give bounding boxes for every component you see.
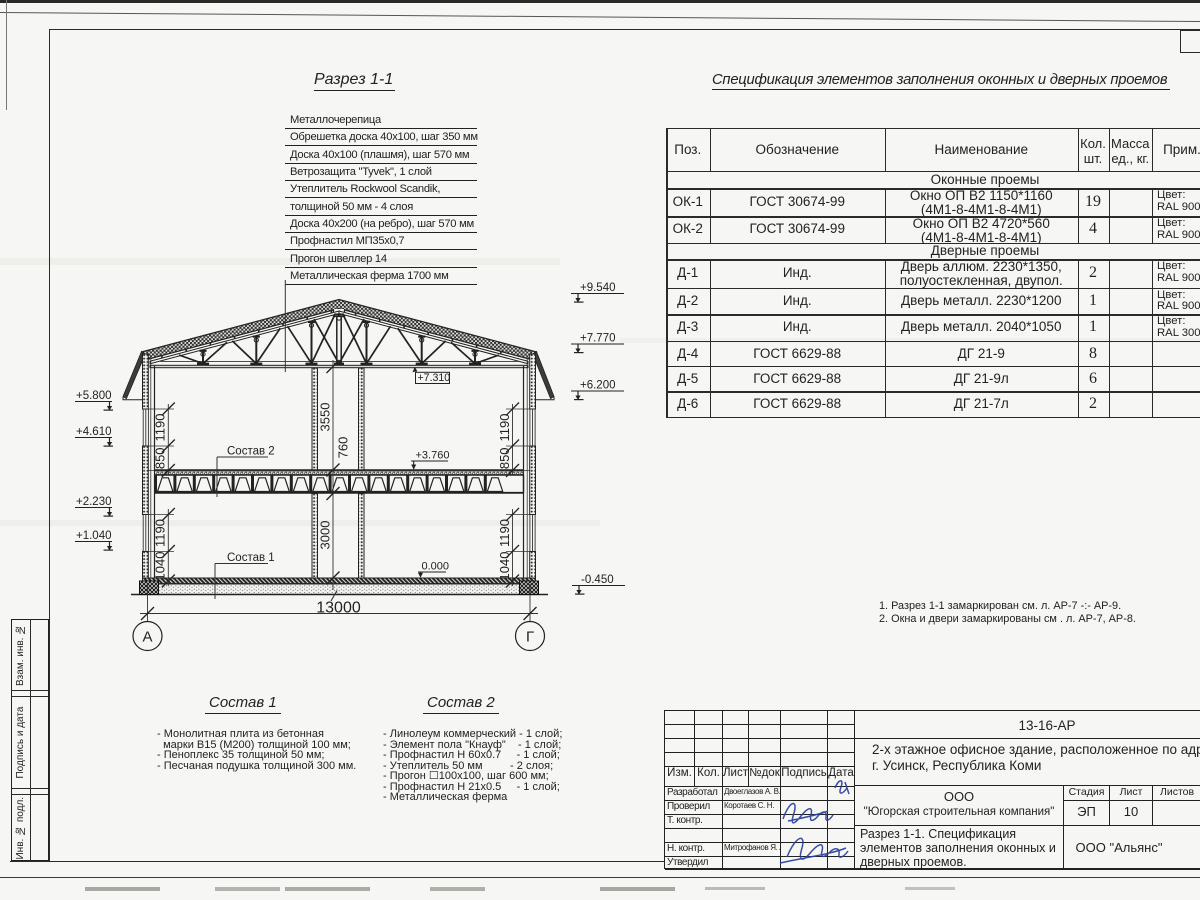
- svg-text:13000: 13000: [316, 600, 361, 617]
- svg-text:1040: 1040: [153, 552, 168, 581]
- svg-text:3000: 3000: [317, 521, 332, 550]
- svg-text:3550: 3550: [317, 403, 332, 432]
- svg-text:А: А: [142, 629, 152, 646]
- svg-text:760: 760: [336, 437, 351, 459]
- svg-text:1040: 1040: [497, 552, 512, 581]
- svg-text:0.000: 0.000: [422, 561, 450, 573]
- svg-text:+7.310: +7.310: [418, 372, 451, 384]
- svg-text:1190: 1190: [497, 519, 512, 547]
- svg-text:Г: Г: [526, 629, 534, 646]
- svg-text:850: 850: [497, 447, 512, 469]
- svg-text:+4.610: +4.610: [76, 426, 112, 438]
- svg-text:-0.450: -0.450: [581, 574, 614, 586]
- svg-text:1190: 1190: [153, 414, 168, 442]
- svg-text:+1.040: +1.040: [76, 530, 112, 542]
- svg-text:Состав 1: Состав 1: [227, 552, 275, 564]
- svg-text:+5.800: +5.800: [76, 390, 112, 402]
- svg-text:+3.760: +3.760: [416, 450, 450, 462]
- svg-text:+6.200: +6.200: [580, 380, 616, 392]
- svg-text:850: 850: [153, 447, 168, 469]
- svg-text:1190: 1190: [497, 414, 512, 442]
- svg-text:Состав 2: Состав 2: [227, 446, 275, 458]
- svg-text:+7.770: +7.770: [580, 333, 616, 345]
- svg-text:+9.540: +9.540: [580, 282, 616, 294]
- svg-text:1190: 1190: [153, 519, 168, 547]
- svg-text:+2.230: +2.230: [76, 496, 112, 508]
